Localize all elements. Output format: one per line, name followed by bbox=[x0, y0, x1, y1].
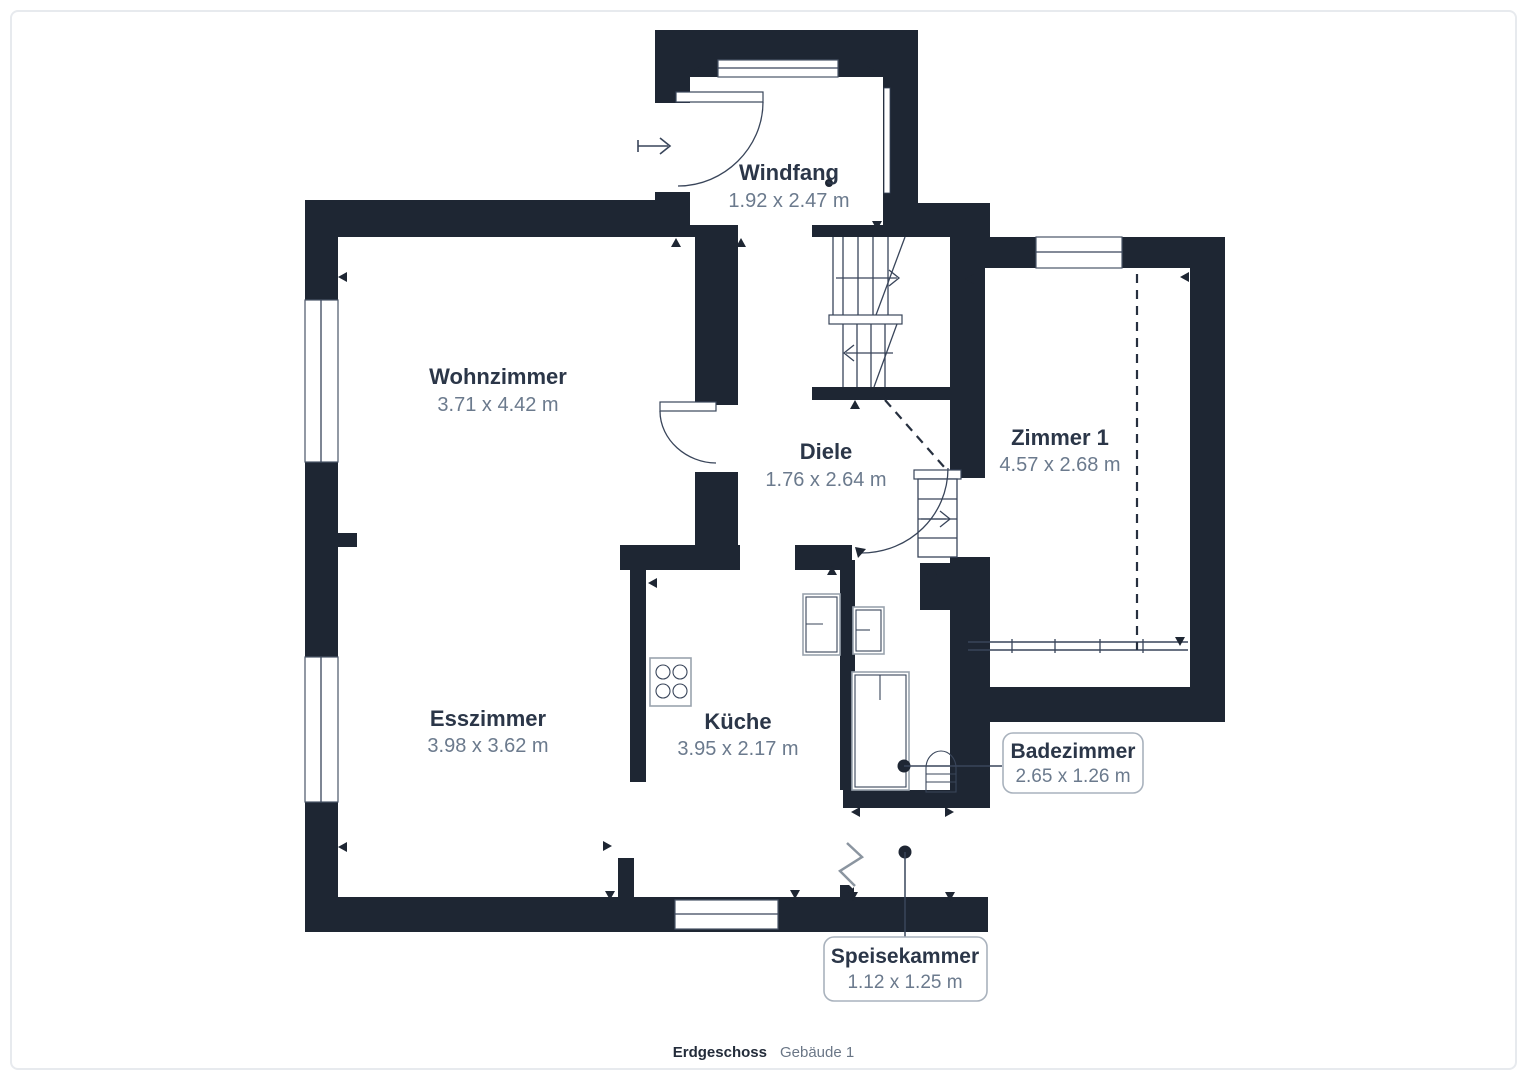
plan-footer: Erdgeschoss Gebäude 1 bbox=[0, 1040, 1527, 1064]
callout-badezimmer[interactable]: Badezimmer 2.65 x 1.26 m bbox=[1003, 733, 1143, 793]
window bbox=[305, 657, 338, 802]
sink-icon bbox=[803, 594, 840, 655]
footer-floor-label: Erdgeschoss bbox=[673, 1044, 767, 1061]
window bbox=[718, 60, 838, 77]
door-arc bbox=[660, 402, 716, 463]
wall-niche bbox=[884, 88, 890, 193]
stove-icon bbox=[650, 658, 691, 706]
room-name: Wohnzimmer bbox=[429, 364, 567, 389]
room-label-diele: Diele 1.76 x 2.64 m bbox=[765, 439, 886, 491]
window bbox=[305, 300, 338, 462]
room-label-esszimmer: Esszimmer 3.98 x 3.62 m bbox=[427, 706, 548, 757]
break-symbol-icon bbox=[840, 843, 862, 886]
callout-dims: 1.12 x 1.25 m bbox=[847, 972, 962, 993]
entry-steps bbox=[914, 470, 961, 557]
window bbox=[675, 900, 778, 929]
dashed-headroom-line bbox=[885, 400, 945, 468]
shower-icon bbox=[852, 672, 909, 790]
room-dims: 3.98 x 3.62 m bbox=[427, 735, 548, 757]
callout-speisekammer[interactable]: Speisekammer 1.12 x 1.25 m bbox=[824, 937, 987, 1001]
window bbox=[968, 639, 1188, 653]
callout-dims: 2.65 x 1.26 m bbox=[1015, 766, 1130, 787]
sink-icon bbox=[853, 607, 884, 654]
window bbox=[1036, 237, 1122, 268]
callout-name: Badezimmer bbox=[1011, 740, 1136, 763]
footer-building-label: Gebäude 1 bbox=[780, 1044, 854, 1061]
room-name: Küche bbox=[704, 709, 771, 734]
room-label-zimmer1: Zimmer 1 4.57 x 2.68 m bbox=[999, 425, 1120, 476]
callout-name: Speisekammer bbox=[831, 945, 979, 968]
entrance-arrow-icon bbox=[638, 138, 670, 154]
room-dims: 1.92 x 2.47 m bbox=[728, 190, 849, 212]
floor-plan-svg: Windfang 1.92 x 2.47 m Wohnzimmer 3.71 x… bbox=[0, 0, 1527, 1080]
room-label-wohnzimmer: Wohnzimmer 3.71 x 4.42 m bbox=[429, 364, 567, 416]
room-name: Diele bbox=[800, 439, 853, 464]
room-name: Zimmer 1 bbox=[1011, 425, 1109, 450]
room-label-kueche: Küche 3.95 x 2.17 m bbox=[677, 709, 798, 760]
room-dims: 3.95 x 2.17 m bbox=[677, 738, 798, 760]
room-name: Esszimmer bbox=[430, 706, 547, 731]
main-staircase bbox=[829, 237, 905, 387]
room-dims: 4.57 x 2.68 m bbox=[999, 454, 1120, 476]
room-dims: 1.76 x 2.64 m bbox=[765, 469, 886, 491]
room-dims: 3.71 x 4.42 m bbox=[437, 394, 558, 416]
room-name: Windfang bbox=[739, 160, 839, 185]
